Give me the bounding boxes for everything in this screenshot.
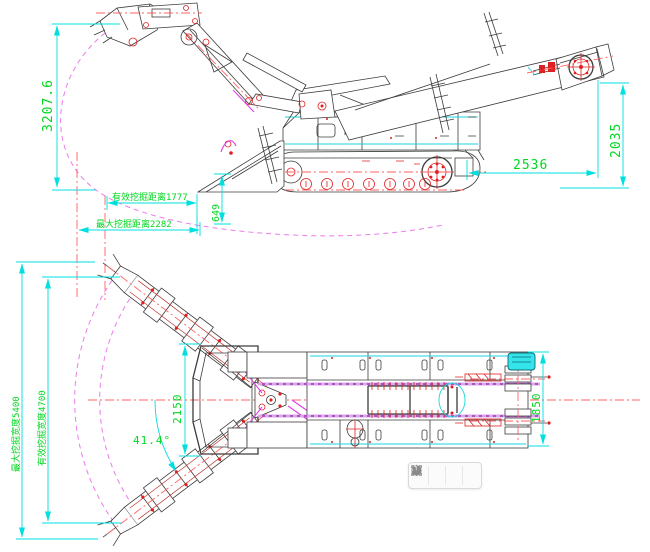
region-select-button[interactable]: [462, 466, 479, 485]
dim-swing-angle: 41.4°: [133, 400, 176, 471]
dim-text-shovel-lip-height: 649: [211, 204, 222, 222]
digging-arm-side: [90, 3, 335, 119]
crawler-track-side: [268, 151, 486, 192]
dim-text-effective-digging-distance: 有效挖掘距离1777: [112, 191, 188, 203]
color-sample-button[interactable]: [445, 466, 462, 485]
cad-drawing: 3207.6 有效挖掘距离1777 最大挖掘距离2282 649 2536: [0, 0, 650, 552]
dim-text-swing-angle: 41.4°: [133, 434, 171, 447]
dim-max-digging-distance: 最大挖掘距离2282: [79, 218, 200, 236]
dim-max-digging-width: 最大挖掘宽度5400: [10, 262, 98, 539]
dim-envelope-height: 3207.6: [41, 24, 120, 190]
contrast-button[interactable]: [428, 466, 445, 485]
dim-text-hopper-width: 2150: [171, 394, 184, 425]
plan-view: 最大挖掘宽度5400 有效挖掘宽度4700 2150 1850 41.4°: [10, 251, 640, 549]
dim-text-envelope-height: 3207.6: [41, 79, 56, 132]
cad-drawing-page: 3207.6 有效挖掘距离1777 最大挖掘距离2282 649 2536: [0, 0, 650, 552]
dim-text-conveyor-overhang: 2536: [513, 158, 548, 173]
side-view: 3207.6 有效挖掘距离1777 最大挖掘距离2282 649 2536: [41, 3, 629, 300]
front-shovel-side: [198, 126, 284, 192]
dim-text-machine-width: 1850: [530, 393, 543, 424]
dim-text-effective-digging-width: 有效挖掘宽度4700: [36, 390, 48, 466]
dim-text-max-digging-width: 最大挖掘宽度5400: [10, 396, 22, 472]
dim-discharge-height: 2035: [560, 83, 629, 188]
drive-motor-highlight: [508, 353, 535, 370]
dim-text-discharge-height: 2035: [609, 123, 624, 158]
region-select-icon: [409, 463, 424, 478]
image-viewer-toolbar: [408, 462, 482, 489]
dim-text-max-digging-distance: 最大挖掘距离2282: [96, 218, 172, 230]
